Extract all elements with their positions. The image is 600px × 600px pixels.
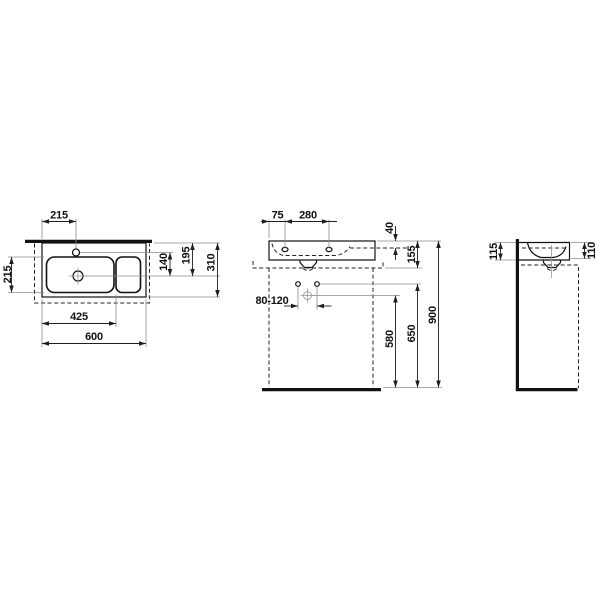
side-view: 115 110 [488, 239, 598, 391]
dim-label: 600 [85, 331, 103, 343]
dim-label: 215 [50, 210, 68, 222]
dim-label: 900 [427, 306, 439, 324]
dim-label: 310 [206, 254, 218, 272]
dim-label: 215 [2, 266, 14, 284]
dim-tap-to-drain: 140 [158, 253, 172, 277]
furniture-hidden-outline [521, 265, 579, 388]
dim-fixing-height: 650 [406, 284, 420, 388]
dim-label: 80-120 [255, 295, 288, 307]
bowl-section-contour [528, 243, 567, 258]
bowl-hidden-contour [272, 244, 350, 256]
technical-drawing-page: 215 215 140 195 310 [0, 0, 600, 600]
mounting-bolt-left [296, 282, 301, 287]
mounting-bolt-right [315, 282, 320, 287]
dim-waste-offset-range: 80-120 [255, 295, 331, 308]
shelf-hatch-area [116, 257, 141, 293]
underbody-hidden-outline [253, 261, 383, 268]
fixing-hole-right [326, 247, 332, 251]
dim-hole-positions: 75 280 [261, 210, 337, 224]
dim-label: 155 [406, 246, 418, 264]
dim-label: 75 [272, 210, 284, 222]
washbasin-dimension-drawing: 215 215 140 195 310 [0, 0, 600, 600]
dim-tap-offset: 215 [42, 210, 76, 224]
waste-outlet-hidden [547, 269, 557, 271]
dim-label: 650 [406, 325, 418, 343]
dim-label: 425 [70, 311, 88, 323]
dim-bowl-depth: 215 [2, 257, 14, 293]
dim-label: 110 [586, 242, 598, 259]
top-view: 215 215 140 195 310 [2, 210, 220, 348]
dim-bowl-zone-width: 425 [42, 311, 116, 326]
dim-rim-height: 900 [427, 241, 441, 388]
tap-hole [73, 249, 80, 256]
waste-outlet [544, 260, 561, 268]
dim-label: 40 [384, 222, 396, 234]
dim-body-height: 155 [406, 241, 420, 268]
fixing-hole-left [282, 247, 288, 251]
front-view: 75 280 40 155 80-120 [253, 210, 442, 390]
dim-depth-total: 310 [206, 243, 220, 297]
waste-outlet [300, 260, 317, 268]
dim-rim-to-drain: 195 [181, 243, 195, 276]
basin-rim-outline [42, 243, 146, 297]
dim-height-at-front: 110 [582, 242, 598, 259]
dim-label: 195 [181, 247, 193, 265]
dim-label: 580 [384, 330, 396, 348]
bowl-outline [47, 257, 115, 293]
dim-label: 115 [488, 243, 500, 260]
dim-label: 140 [158, 253, 170, 271]
waste-outlet-hidden [303, 269, 313, 271]
dim-label: 280 [299, 210, 317, 222]
dim-width-total: 600 [42, 331, 146, 346]
dim-height-at-wall: 115 [488, 243, 503, 261]
dim-waste-height: 580 [384, 296, 398, 388]
